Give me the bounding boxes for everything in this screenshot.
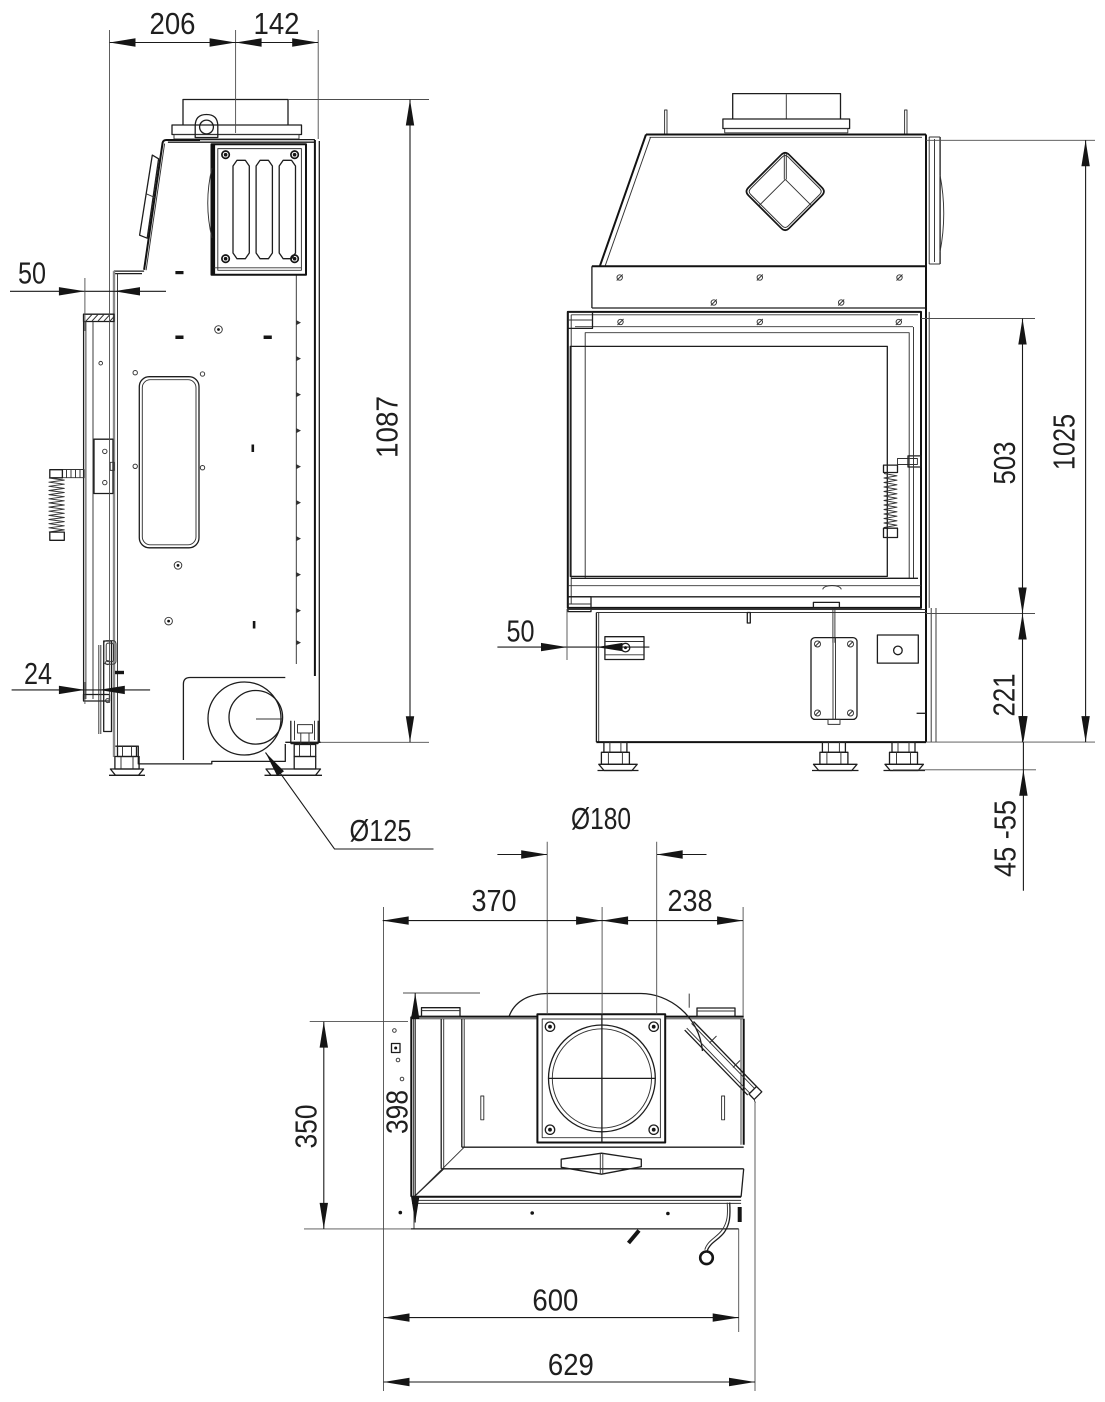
svg-text:142: 142: [254, 6, 300, 41]
svg-text:1025: 1025: [1047, 414, 1082, 470]
svg-text:24: 24: [24, 656, 52, 691]
svg-text:600: 600: [532, 1283, 578, 1318]
svg-text:Ø125: Ø125: [350, 813, 412, 848]
svg-text:221: 221: [987, 674, 1022, 717]
svg-text:45 -55: 45 -55: [988, 800, 1023, 877]
svg-text:Ø180: Ø180: [571, 801, 631, 836]
svg-text:629: 629: [548, 1347, 594, 1382]
svg-text:238: 238: [668, 883, 713, 918]
svg-text:398: 398: [380, 1090, 415, 1134]
svg-text:1087: 1087: [370, 396, 405, 458]
svg-text:206: 206: [150, 6, 196, 41]
svg-text:50: 50: [18, 256, 46, 291]
svg-text:503: 503: [987, 442, 1022, 485]
svg-text:370: 370: [472, 883, 517, 918]
svg-text:350: 350: [289, 1105, 324, 1149]
svg-text:50: 50: [507, 614, 535, 649]
